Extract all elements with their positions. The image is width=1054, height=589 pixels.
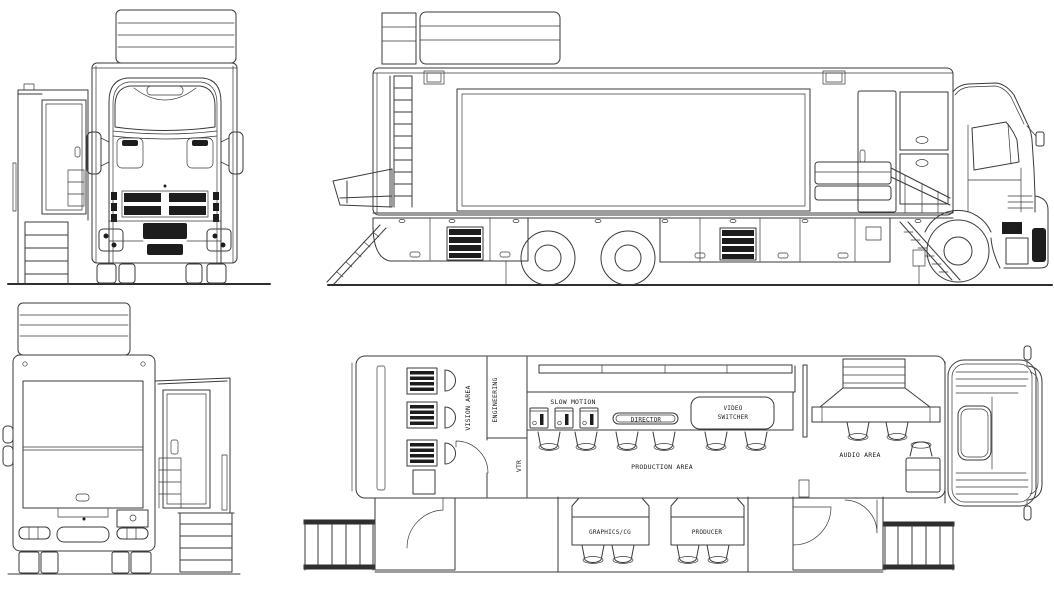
plan-rear-door (377, 366, 385, 490)
side-crew-door (858, 91, 896, 212)
front-entry-ladder (68, 170, 84, 206)
rear-step-bumper (57, 527, 109, 542)
front-entry-door-handle (75, 147, 80, 157)
front-headlight-right-lamp (213, 234, 218, 239)
plan-door-vision (456, 441, 488, 473)
front-mirror-right (229, 132, 243, 174)
side-cab-step-dark (1002, 222, 1022, 234)
floor-plan-drawing: VISION AREA ENGINEERING VTR SLOW MOTION … (305, 346, 1042, 572)
blueprint-canvas: VISION AREA ENGINEERING VTR SLOW MOTION … (0, 0, 1054, 589)
label-graphics-cg: GRAPHICS/CG (589, 529, 631, 536)
plan-video-switcher-box (691, 397, 774, 429)
rear-shutter (23, 381, 143, 508)
side-cab-wheel-arch (925, 210, 991, 232)
rear-mudflaps (19, 552, 151, 573)
plan-body-outline (356, 356, 945, 498)
side-cab-mirror (1036, 132, 1044, 146)
front-windshield (115, 86, 215, 131)
side-skirt-rear (373, 218, 528, 284)
plan-monitor-band (527, 366, 795, 392)
plan-right-stairs (885, 522, 953, 570)
floor-plan-labels: VISION AREA ENGINEERING VTR SLOW MOTION … (464, 377, 881, 536)
plan-audio-side-desk (906, 442, 940, 492)
side-cab-step-box (1006, 238, 1028, 264)
side-cab-outline (953, 83, 1035, 213)
plan-monitor-wall (539, 365, 792, 373)
front-badge-dot (164, 185, 167, 188)
rear-screw-right (141, 362, 145, 366)
blueprint-svg: VISION AREA ENGINEERING VTR SLOW MOTION … (0, 0, 1054, 589)
side-skirt-front (660, 218, 890, 262)
side-cab-window (972, 122, 1019, 170)
side-rear-platform (327, 169, 392, 284)
label-director: DIRECTOR (631, 417, 662, 424)
front-roof-box (116, 10, 236, 63)
plan-audio-chairs (847, 422, 908, 441)
front-seat-left-headrest (122, 140, 138, 146)
front-sun-visor (134, 88, 196, 100)
front-entry-handrail (13, 163, 16, 211)
plan-audio-console (812, 359, 940, 422)
side-opening-outer (457, 89, 810, 211)
side-cab-roof-inner (955, 86, 1024, 124)
front-entry-clip (24, 84, 34, 90)
side-fold-steps (815, 162, 950, 213)
label-vtr: VTR (515, 460, 523, 472)
side-cab-door-seams (968, 125, 1021, 212)
side-cab-wheel-hub (944, 237, 972, 265)
rear-plate-lamp (130, 515, 136, 521)
rear-plate-box (117, 510, 148, 527)
label-engineering: ENGINEERING (491, 377, 499, 422)
side-roof-vent1-inner (427, 73, 441, 82)
label-producer: PRODUCER (692, 529, 723, 536)
plan-vision-racks (407, 368, 437, 494)
front-roof-hatch (147, 86, 183, 95)
rear-roof-box-rails (20, 315, 128, 336)
plan-production-chairs (538, 432, 767, 451)
rear-step-recess (58, 508, 108, 517)
plan-slowmo-consoles (530, 408, 598, 428)
side-roof-rack (382, 12, 560, 64)
front-roof-box-outline (116, 10, 236, 63)
side-view-drawing (327, 12, 1052, 285)
rear-tail-lights (19, 527, 148, 539)
side-cab (925, 83, 1048, 282)
front-headlight-left-lamp2 (112, 243, 117, 248)
label-slow-motion: SLOW MOTION (550, 398, 595, 406)
plan-pillar (799, 480, 809, 497)
side-cab-bumper-dark (1032, 228, 1046, 262)
rear-shutter-handle (76, 494, 89, 501)
rear-folded-mirrors (3, 426, 13, 466)
rear-shutter-divider (23, 447, 143, 450)
plan-left-vestibule (375, 498, 455, 570)
plan-partition (803, 365, 807, 437)
plan-right-vestibule (793, 497, 883, 570)
front-entry-walls (18, 90, 88, 284)
side-roof-vent2-inner (826, 73, 842, 82)
plan-bottom-room-chairs (582, 545, 729, 564)
rear-view-drawing (3, 303, 240, 574)
front-headlight-left-lamp (104, 234, 109, 239)
front-headlight-right (207, 229, 231, 251)
label-video-switcher-line1: VIDEO (723, 405, 742, 412)
side-cab-stairs (900, 222, 960, 284)
front-side-entry (13, 84, 88, 284)
side-cab-wheel (927, 220, 989, 282)
front-mirror-left (87, 132, 101, 174)
side-opening-inner (462, 94, 805, 206)
label-audio-area: AUDIO AREA (839, 451, 880, 459)
plan-vision-chairs (445, 370, 456, 464)
rear-side-entry (155, 378, 234, 572)
rear-screw-left (23, 362, 27, 366)
front-headlight-right-lamp2 (221, 243, 226, 248)
front-cab (87, 78, 243, 283)
front-headlight-left (99, 229, 123, 251)
side-rear-wheels (521, 231, 655, 285)
front-seat-right-headrest (192, 140, 208, 146)
rear-center-dot (83, 518, 86, 521)
front-mirror-right-arms (221, 138, 229, 166)
side-cab-window-divider (1008, 124, 1011, 164)
side-box-outline (373, 68, 953, 215)
label-video-switcher-line2: SWITCHER (718, 414, 749, 421)
front-roof-box-rails (118, 23, 234, 47)
plan-left-stairs (305, 520, 373, 570)
side-lockers (900, 92, 948, 204)
label-production-area: PRODUCTION AREA (631, 463, 693, 471)
front-mirror-left-arms (101, 138, 109, 166)
front-wheels (97, 264, 226, 283)
plan-monitor-dividers (602, 365, 727, 373)
rear-roof-box (18, 303, 130, 355)
front-lower-grille2 (147, 244, 183, 255)
side-rear-ladder (390, 76, 412, 207)
rear-body-outline (13, 355, 155, 551)
front-view-drawing (8, 10, 270, 284)
front-lower-grille (143, 223, 187, 239)
side-cab-grille-stripes (1008, 196, 1033, 208)
label-vision-area: VISION AREA (464, 385, 472, 430)
front-grille-slats (124, 193, 206, 215)
front-entry-steps (25, 222, 68, 284)
plan-cab (945, 346, 1042, 520)
